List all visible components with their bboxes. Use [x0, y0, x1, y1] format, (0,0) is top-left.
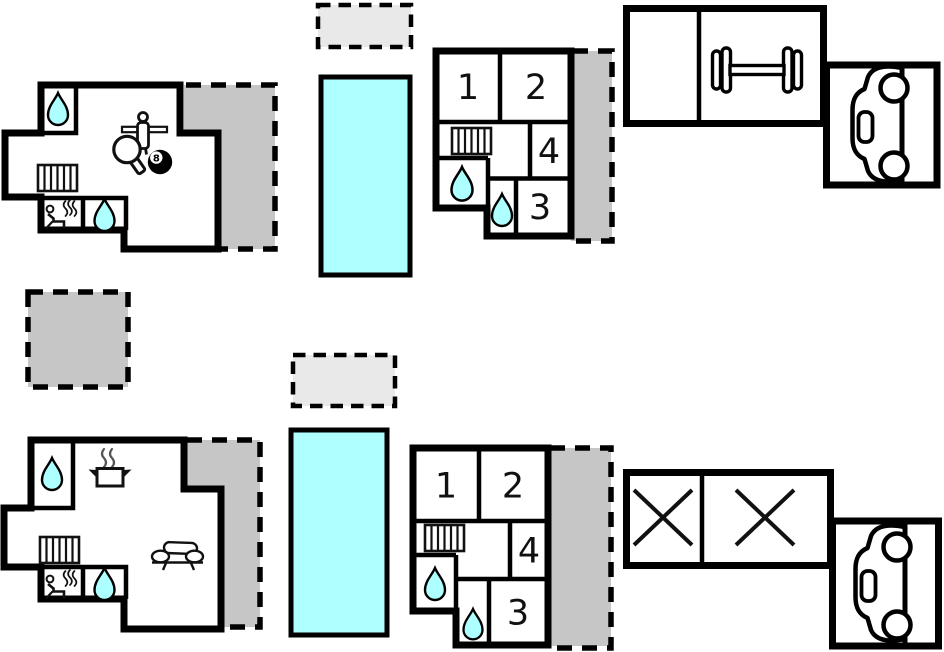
lower-patio	[293, 355, 395, 406]
floorplan-page: 8 1 2 4 3	[0, 0, 944, 652]
upper-annex-terrace	[571, 51, 612, 241]
room-label-2: 2	[525, 68, 547, 108]
lower-annex: 1 2 4 3	[413, 448, 548, 645]
lower-pool	[291, 430, 387, 635]
eight-ball-number: 8	[153, 153, 160, 164]
eight-ball-icon: 8	[148, 150, 172, 174]
terrace-area	[548, 448, 611, 646]
lower-level: 1 2 4 3	[4, 292, 939, 648]
terrace-area	[28, 292, 128, 387]
room-label-4: 4	[538, 132, 560, 172]
lower-annex-terrace	[548, 448, 611, 648]
room-label-4: 4	[518, 532, 540, 572]
crossed-building-outline	[627, 473, 831, 566]
upper-level: 8 1 2 4 3	[5, 5, 937, 275]
upper-pool	[321, 77, 410, 275]
upper-outbuilding	[627, 9, 938, 186]
room-label-3: 3	[529, 188, 551, 228]
radiator-icon	[452, 128, 491, 154]
radiator-icon	[40, 537, 79, 563]
floorplan-canvas: 8 1 2 4 3	[0, 0, 944, 652]
radiator-icon	[38, 165, 77, 191]
upper-patio	[318, 5, 411, 47]
terrace-area	[571, 51, 612, 241]
lower-outbuilding	[627, 473, 939, 647]
upper-annex: 1 2 4 3	[436, 51, 571, 236]
room-label-3: 3	[507, 594, 529, 634]
lower-detached-terrace	[28, 292, 128, 387]
room-label-1: 1	[457, 68, 479, 108]
radiator-icon	[425, 525, 464, 551]
room-label-2: 2	[502, 467, 524, 507]
room-label-1: 1	[435, 467, 457, 507]
